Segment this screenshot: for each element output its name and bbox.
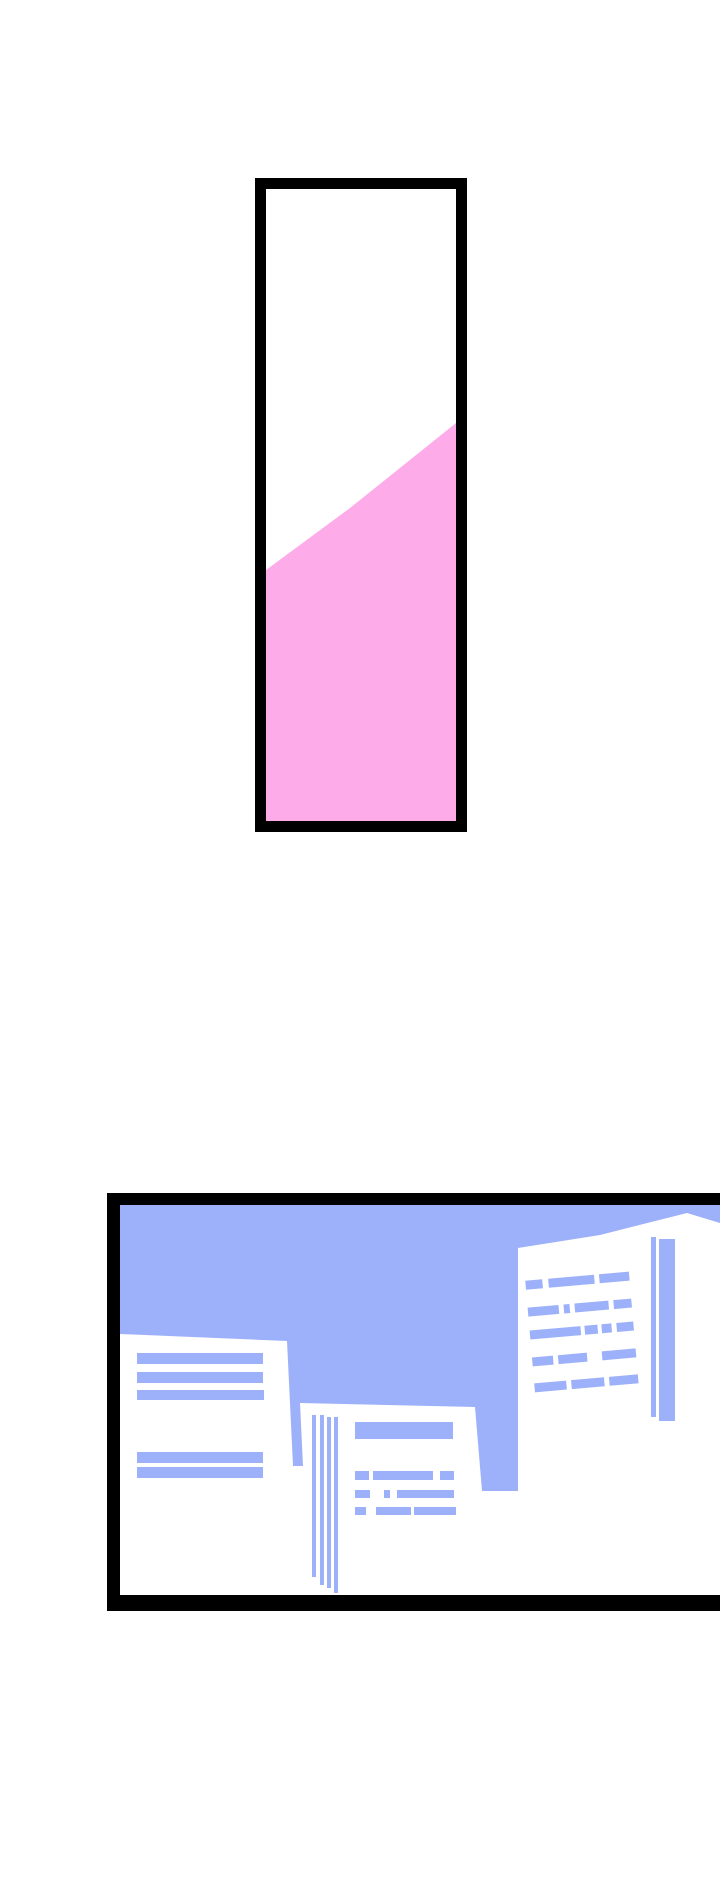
middle-building-edge-line (320, 1415, 324, 1585)
middle-building-text-dash (376, 1507, 411, 1515)
right-building-corner-stripe (659, 1239, 675, 1421)
city-panel (107, 1193, 720, 1611)
right-building-window-dash (584, 1325, 598, 1335)
middle-building-text-dash (440, 1471, 454, 1480)
middle-building-text-dash (397, 1490, 454, 1498)
right-building-window-dash (601, 1323, 612, 1333)
left-building-window-stripe (137, 1467, 263, 1478)
middle-building-text-dash (414, 1507, 456, 1515)
middle-building-text-dash (355, 1471, 369, 1480)
middle-building-text-dash (384, 1490, 390, 1498)
right-building-window-dash (532, 1356, 554, 1367)
tube-panel (255, 178, 468, 832)
right-building-window-dash (613, 1299, 632, 1310)
left-building-window-stripe (137, 1452, 263, 1463)
left-building-window-stripe (137, 1353, 263, 1364)
left-building-window-stripe (137, 1390, 264, 1400)
middle-building-edge-line (334, 1417, 338, 1593)
right-building-window-dash (525, 1279, 543, 1289)
middle-building-edge-line (312, 1415, 316, 1577)
middle-building-sign (355, 1422, 453, 1439)
middle-building-edge-line (327, 1417, 331, 1588)
right-building-window-dash (616, 1321, 634, 1331)
middle-building-text-dash (373, 1471, 433, 1480)
middle-building-text-dash (355, 1507, 366, 1515)
right-building-window-dash (563, 1304, 570, 1313)
right-building-corner-stripe (651, 1237, 656, 1417)
comic-page (0, 0, 720, 1890)
left-building-window-stripe (137, 1372, 263, 1383)
middle-building-text-dash (355, 1490, 370, 1498)
